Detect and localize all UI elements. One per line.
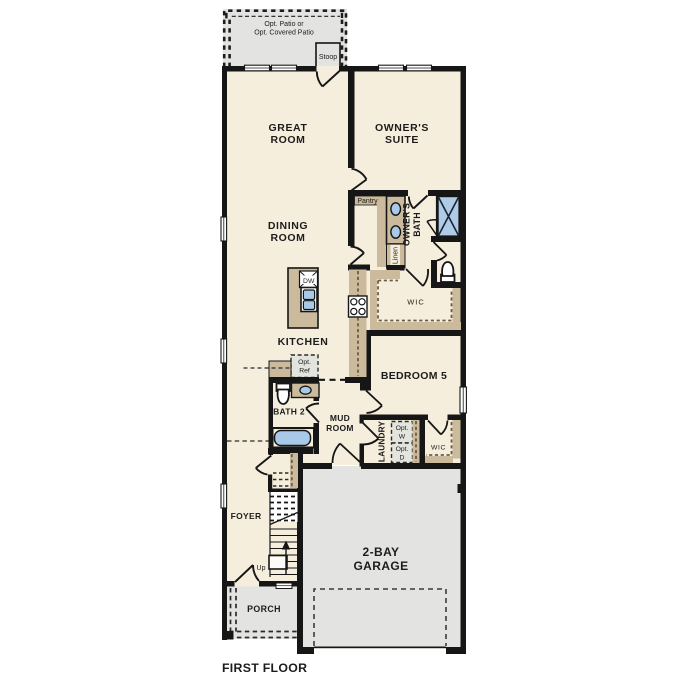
svg-text:OWNER'S: OWNER'S — [375, 122, 429, 134]
svg-text:ROOM: ROOM — [326, 423, 354, 433]
svg-text:Stoop: Stoop — [319, 54, 337, 61]
svg-text:LAUNDRY: LAUNDRY — [378, 421, 387, 462]
svg-text:FOYER: FOYER — [231, 511, 262, 521]
svg-text:GREAT: GREAT — [269, 122, 308, 134]
svg-text:BATH: BATH — [412, 212, 422, 237]
svg-text:DW: DW — [303, 278, 315, 285]
svg-text:Opt.: Opt. — [298, 359, 311, 366]
svg-text:Opt. Covered Patio: Opt. Covered Patio — [254, 30, 314, 37]
svg-text:PORCH: PORCH — [247, 604, 281, 614]
svg-text:ROOM: ROOM — [270, 232, 305, 244]
svg-text:BATH 2: BATH 2 — [273, 407, 305, 417]
svg-text:Opt.: Opt. — [396, 425, 409, 432]
svg-text:Ref: Ref — [299, 368, 310, 375]
svg-text:Pantry: Pantry — [357, 198, 378, 205]
svg-text:W: W — [399, 434, 406, 441]
svg-text:GARAGE: GARAGE — [353, 559, 408, 573]
svg-text:OWNER'S: OWNER'S — [402, 203, 412, 246]
svg-text:ROOM: ROOM — [270, 134, 305, 146]
svg-text:SUITE: SUITE — [385, 134, 419, 146]
svg-text:Up: Up — [257, 565, 266, 572]
svg-text:WIC: WIC — [431, 445, 446, 452]
svg-text:Opt. Patio or: Opt. Patio or — [264, 21, 304, 28]
svg-text:D: D — [400, 455, 405, 462]
svg-text:WIC: WIC — [407, 298, 425, 307]
svg-text:2-BAY: 2-BAY — [363, 545, 400, 559]
svg-text:FIRST FLOOR: FIRST FLOOR — [222, 661, 307, 675]
svg-text:KITCHEN: KITCHEN — [278, 336, 329, 348]
svg-text:BEDROOM 5: BEDROOM 5 — [381, 370, 447, 382]
svg-text:Linen: Linen — [393, 247, 400, 264]
svg-text:MUD: MUD — [330, 413, 350, 423]
svg-text:DINING: DINING — [268, 220, 308, 232]
svg-text:Opt.: Opt. — [396, 446, 409, 453]
